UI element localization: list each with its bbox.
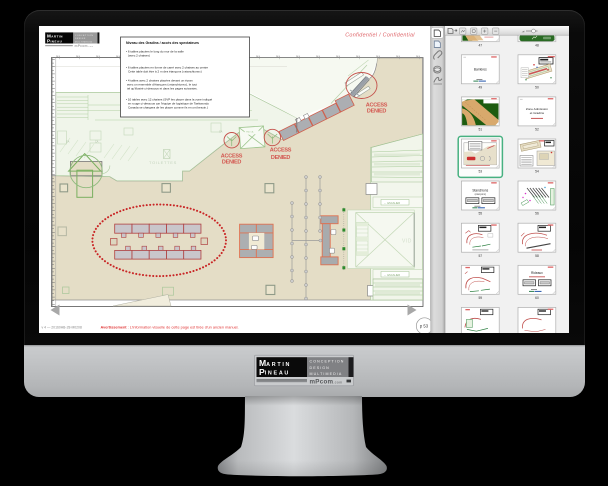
svg-text:53: 53 bbox=[478, 170, 482, 174]
svg-text:v 4 — 20160HB-28-M0208: v 4 — 20160HB-28-M0208 bbox=[42, 326, 82, 330]
svg-text:50: 50 bbox=[535, 85, 539, 89]
svg-text:Avertissement : L'information: Avertissement : L'information visuelle d… bbox=[101, 325, 239, 329]
svg-text:58: 58 bbox=[535, 254, 539, 258]
svg-text:tel qu'illustré ci-dessous et: tel qu'illustré ci-dessous et dans les p… bbox=[127, 87, 198, 91]
svg-text:Confidentiel / Confidential: Confidentiel / Confidential bbox=[345, 33, 415, 39]
svg-text:Barrières: Barrières bbox=[474, 67, 487, 71]
svg-text:DENIED: DENIED bbox=[271, 155, 291, 161]
svg-text:ACCESS: ACCESS bbox=[270, 148, 292, 154]
svg-text:VID: VID bbox=[402, 239, 412, 245]
svg-text:CA: CA bbox=[219, 131, 223, 134]
svg-text:56: 56 bbox=[535, 212, 539, 216]
svg-text:Canada se chargera de les plac: Canada se chargera de les placer comme i… bbox=[128, 105, 208, 109]
svg-text:CA: CA bbox=[66, 141, 70, 144]
svg-text:p 53: p 53 bbox=[420, 324, 429, 329]
svg-text:55: 55 bbox=[478, 212, 482, 216]
svg-text:Niveau des Gradins / accès des: Niveau des Gradins / accès des spectateu… bbox=[126, 41, 199, 45]
svg-text:TOILETTES: TOILETTES bbox=[149, 160, 177, 165]
svg-text:52: 52 bbox=[535, 128, 539, 132]
svg-text:TKD CA: TKD CA bbox=[246, 131, 254, 134]
svg-text:DENIED: DENIED bbox=[222, 160, 242, 166]
svg-text:Rideaux: Rideaux bbox=[531, 271, 543, 275]
svg-text:Stanchions: Stanchions bbox=[472, 189, 488, 193]
svg-text:← ESCALIER: ← ESCALIER bbox=[384, 201, 400, 205]
svg-text:48: 48 bbox=[535, 43, 539, 47]
svg-text:DESIGN: DESIGN bbox=[75, 38, 86, 40]
svg-text:59: 59 bbox=[478, 296, 482, 300]
svg-text:CONCEPTION: CONCEPTION bbox=[310, 360, 345, 364]
svg-text:PINEAU: PINEAU bbox=[47, 38, 62, 43]
svg-text:47: 47 bbox=[478, 43, 482, 47]
svg-text:mPcom.com: mPcom.com bbox=[310, 379, 343, 386]
svg-text:51: 51 bbox=[478, 128, 482, 132]
svg-text:ACCESS: ACCESS bbox=[221, 153, 243, 159]
svg-text:(avec 2 chaises): (avec 2 chaises) bbox=[128, 54, 150, 58]
svg-text:(étançons): (étançons) bbox=[475, 193, 486, 196]
svg-text:DESIGN: DESIGN bbox=[310, 366, 330, 370]
svg-text:MULTIMEDIA: MULTIMEDIA bbox=[75, 41, 92, 44]
svg-text:CA: CA bbox=[95, 141, 99, 144]
svg-text:DENIED: DENIED bbox=[367, 109, 387, 115]
svg-text:54: 54 bbox=[535, 170, 539, 174]
svg-text:60: 60 bbox=[535, 296, 539, 300]
svg-text:CONCEPTION: CONCEPTION bbox=[75, 35, 93, 37]
svg-text:57: 57 bbox=[478, 254, 482, 258]
svg-text:← ESCALIER: ← ESCALIER bbox=[384, 273, 400, 277]
svg-text:Cette table doit être à 2 m de: Cette table doit être à 2 m des étançons… bbox=[128, 69, 202, 73]
svg-text:et Gradins: et Gradins bbox=[530, 111, 545, 115]
svg-text:MULTIMEDIA: MULTIMEDIA bbox=[310, 372, 343, 376]
svg-text:49: 49 bbox=[478, 85, 482, 89]
